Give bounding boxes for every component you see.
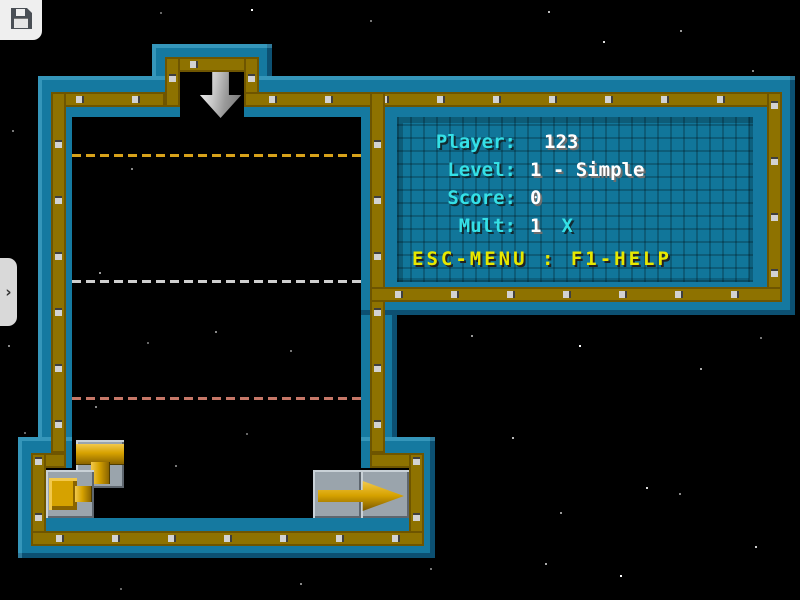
score-value: 0 [516,184,541,212]
piece-start-cap[interactable] [46,470,94,518]
start-cap-stub [75,486,91,502]
guide-line-lower-dashes [72,397,361,400]
player-value: 123 [516,128,578,156]
gold-band-panel-right [767,92,782,302]
start-cap-block [49,478,77,510]
hud-row-score: Score: 0 [412,184,748,212]
save-button[interactable] [0,0,42,40]
hud-footer-help: ESC-MENU : F1-HELP [412,245,748,273]
guide-line-middle-dashes [72,280,361,283]
guide-line-upper-dashes [72,154,361,157]
gold-band-center-wall [370,92,385,453]
mult-suffix: X [541,212,572,240]
gold-band-bottom [31,531,424,546]
mult-label: Mult: [412,212,516,240]
save-icon [11,8,32,29]
playfield-stars [72,117,74,119]
chevron-right-icon: › [5,283,11,301]
hud-row-level: Level: 1 - Simple [412,156,748,184]
score-label: Score: [412,184,516,212]
tee-pipe-horizontal [76,444,124,464]
gold-band-top-right [244,92,782,107]
hud-row-mult: Mult: 1 X [412,212,748,240]
game-screen: Player: 123 Level: 1 - Simple Score: 0 M… [0,0,800,600]
gold-band-panel-bottom [370,287,782,302]
hud-text: Player: 123 Level: 1 - Simple Score: 0 M… [412,128,748,273]
guide-line-middle [72,280,361,283]
drawer-handle[interactable]: › [0,258,17,326]
chute-opening [180,72,244,117]
level-value: 1 - Simple [516,156,644,184]
guide-line-lower [72,397,361,400]
mult-value: 1 [516,212,541,240]
hud-row-player: Player: 123 [412,128,748,156]
gold-band-top-left [51,92,165,107]
floppy-shutter [16,9,25,16]
gold-band-left-wall [51,92,66,453]
guide-line-upper [72,154,361,157]
gold-band-chute-left [165,57,180,107]
level-label: Level: [412,156,516,184]
floppy-label [14,18,28,28]
player-label: Player: [412,128,516,156]
